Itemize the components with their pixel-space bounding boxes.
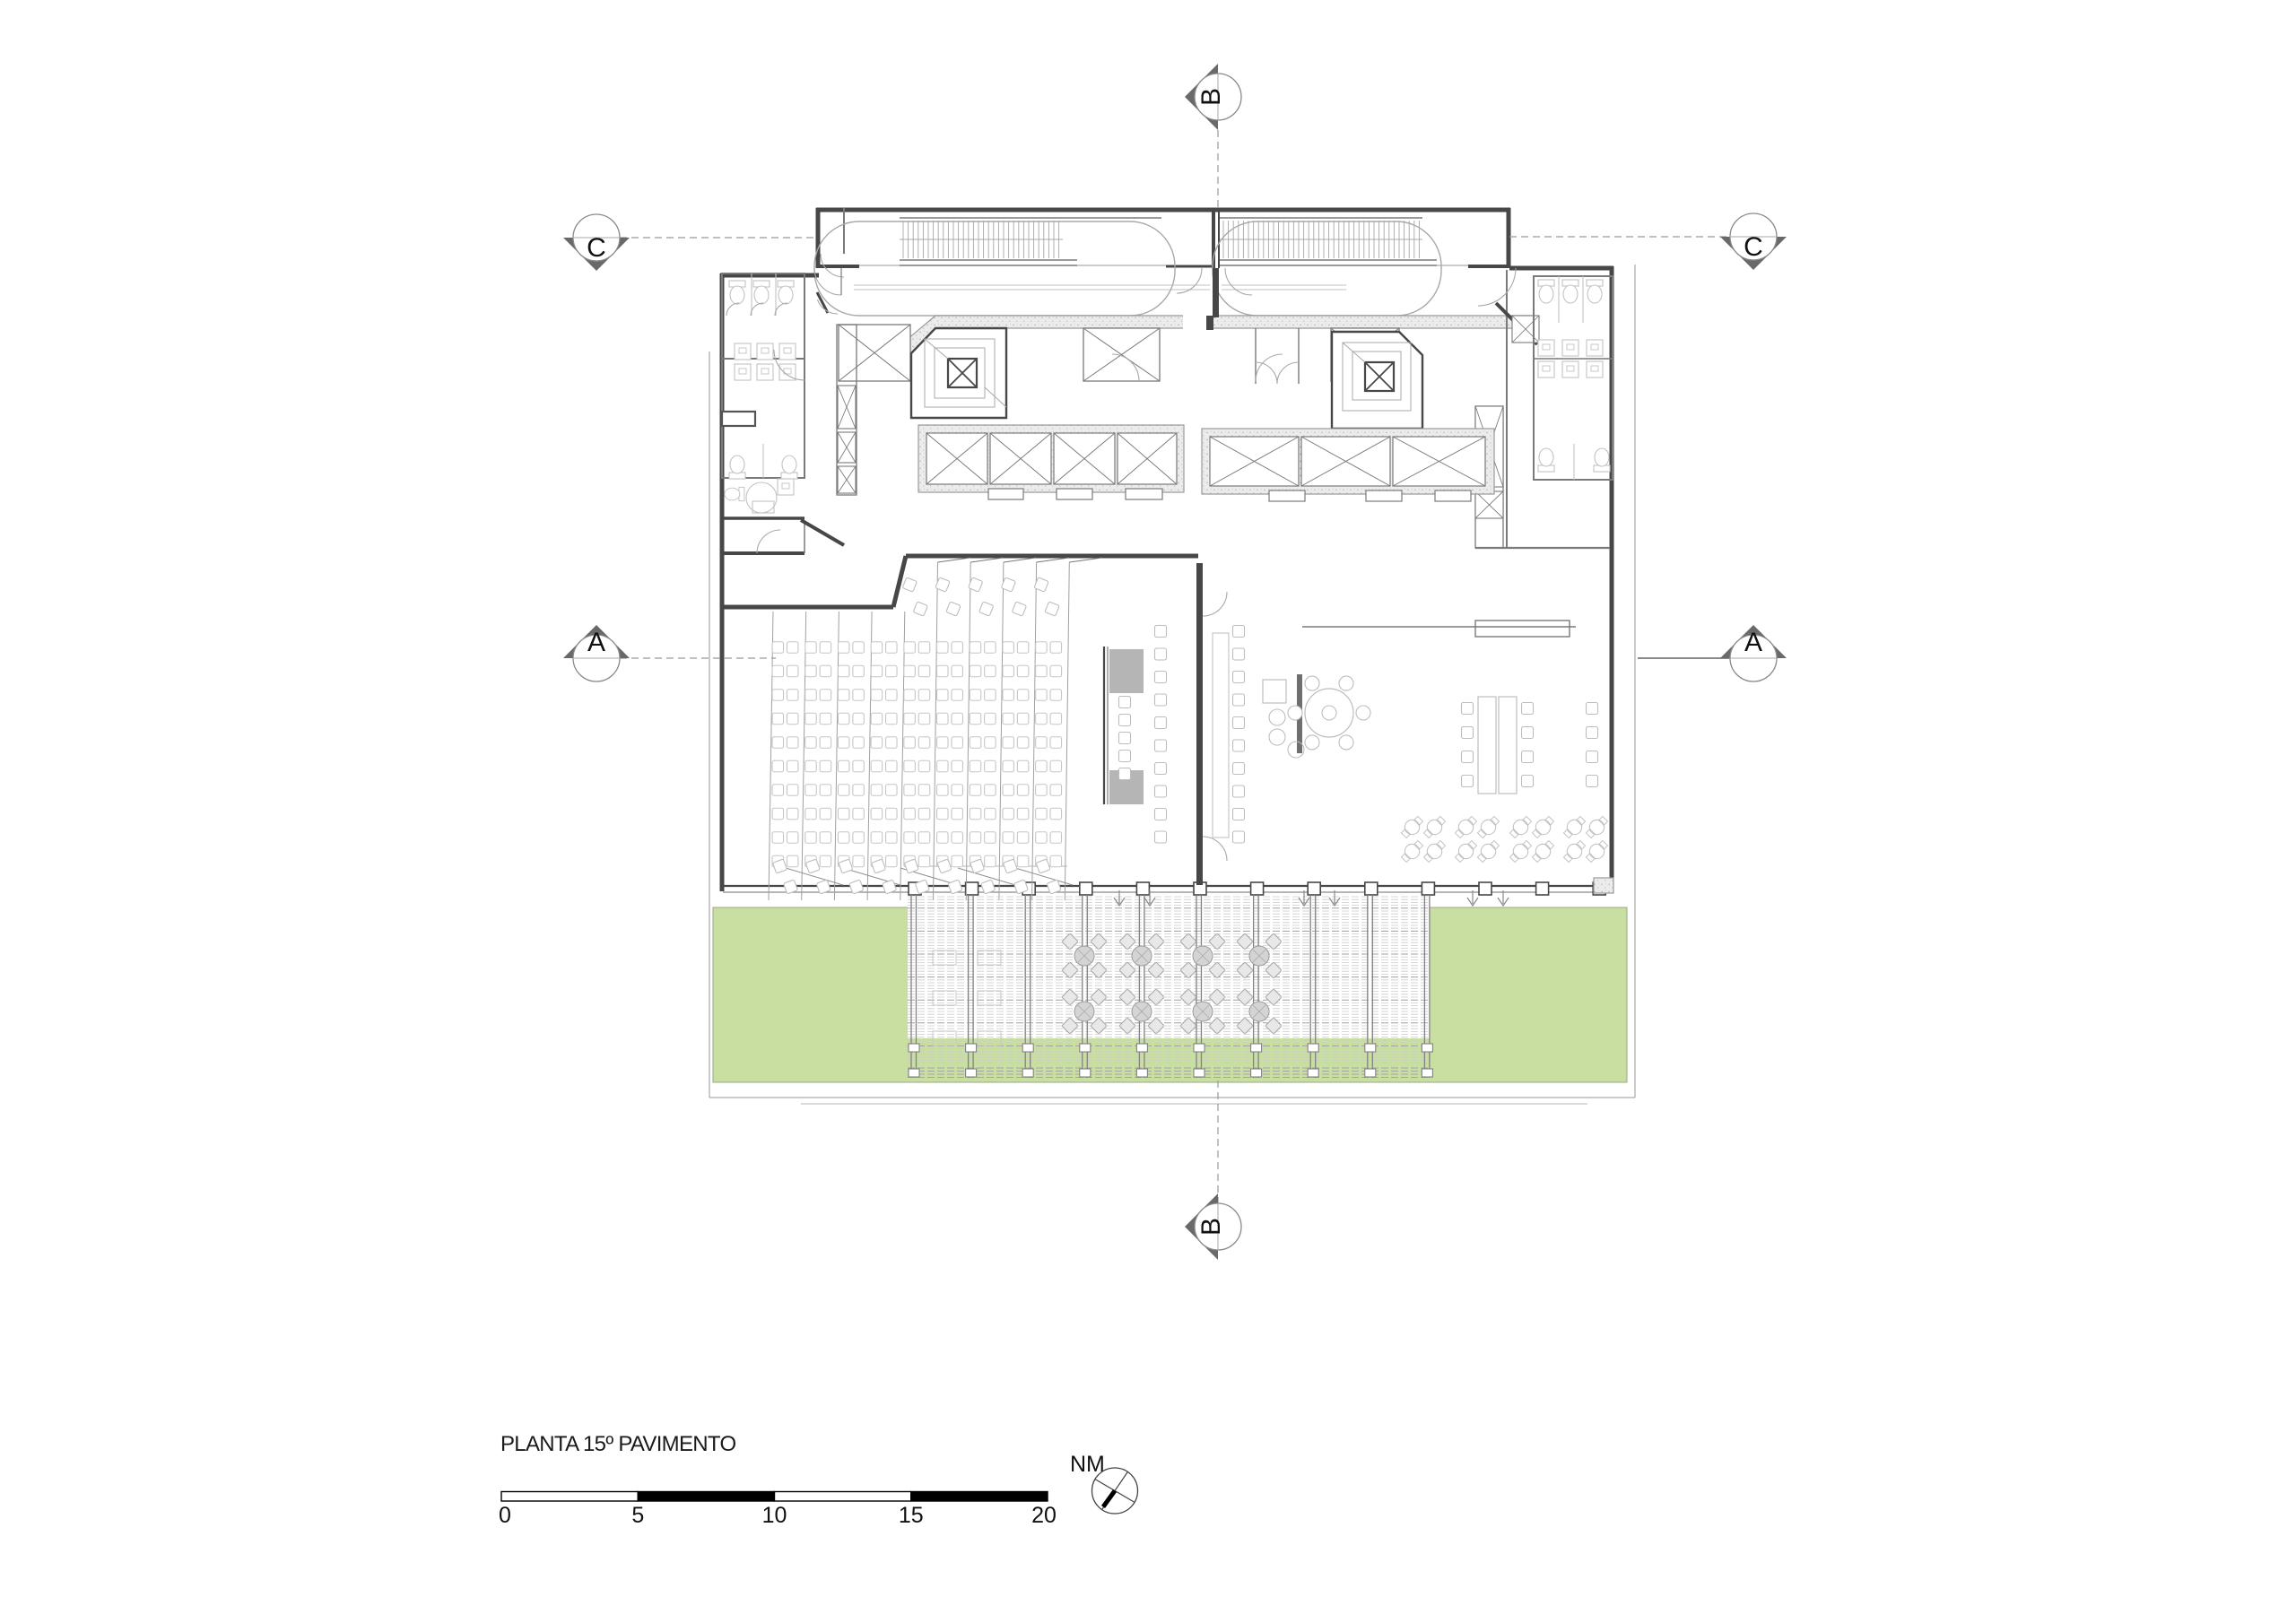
- svg-text:A: A: [587, 628, 605, 657]
- svg-text:C: C: [587, 233, 606, 263]
- svg-text:A: A: [1744, 628, 1762, 657]
- svg-text:5: 5: [631, 1503, 644, 1528]
- svg-text:0: 0: [499, 1503, 511, 1528]
- svg-text:B: B: [1196, 1218, 1226, 1236]
- svg-text:C: C: [1744, 232, 1763, 262]
- svg-text:20: 20: [1031, 1503, 1057, 1528]
- svg-text:PLANTA 15º PAVIMENTO: PLANTA 15º PAVIMENTO: [500, 1432, 735, 1456]
- svg-text:15: 15: [899, 1503, 924, 1528]
- svg-text:B: B: [1196, 88, 1226, 106]
- svg-text:10: 10: [762, 1503, 787, 1528]
